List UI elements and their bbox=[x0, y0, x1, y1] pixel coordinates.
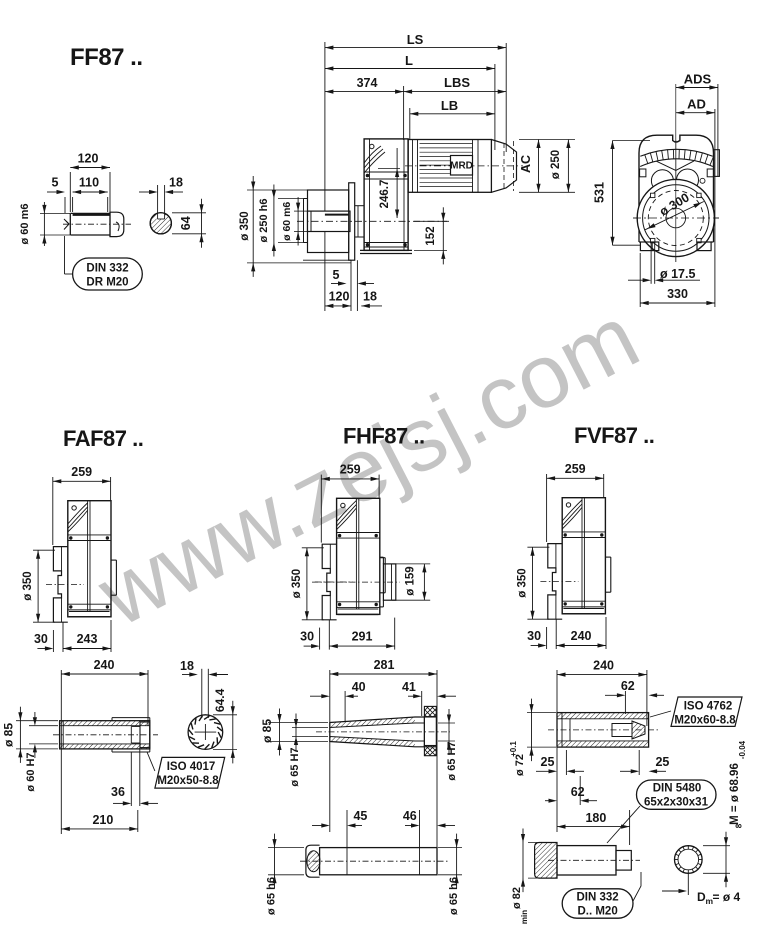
svg-text:62: 62 bbox=[621, 679, 635, 693]
svg-text:ø 350: ø 350 bbox=[239, 211, 251, 240]
svg-text:180: 180 bbox=[585, 811, 606, 825]
svg-text:64: 64 bbox=[179, 216, 193, 230]
svg-text:64.4: 64.4 bbox=[213, 688, 227, 712]
svg-text:41: 41 bbox=[402, 680, 416, 694]
svg-text:374: 374 bbox=[357, 76, 378, 90]
svg-text:240: 240 bbox=[94, 658, 115, 672]
svg-text:ø 350: ø 350 bbox=[291, 569, 303, 598]
svg-text:DIN 5480: DIN 5480 bbox=[653, 783, 702, 795]
svg-text:ø 85: ø 85 bbox=[260, 719, 274, 743]
svg-text:110: 110 bbox=[79, 176, 99, 190]
svg-text:FF87 ..: FF87 .. bbox=[70, 44, 143, 71]
svg-text:-0.04: -0.04 bbox=[738, 740, 747, 759]
svg-text:ø 82: ø 82 bbox=[511, 887, 523, 909]
svg-text:LBS: LBS bbox=[444, 75, 470, 90]
svg-text:ø 17.5: ø 17.5 bbox=[660, 267, 695, 281]
svg-text:210: 210 bbox=[92, 813, 113, 827]
svg-text:ø 65 H7: ø 65 H7 bbox=[289, 747, 301, 786]
svg-text:281: 281 bbox=[374, 658, 395, 672]
svg-text:46: 46 bbox=[403, 809, 417, 823]
svg-text:30: 30 bbox=[300, 630, 314, 644]
svg-text:DIN 332: DIN 332 bbox=[86, 263, 128, 275]
svg-text:M20x50-8.8: M20x50-8.8 bbox=[157, 775, 219, 787]
svg-text:M = ø 68.96: M = ø 68.96 bbox=[729, 763, 741, 825]
svg-text:ISO 4017: ISO 4017 bbox=[167, 761, 216, 773]
svg-text:ø 250: ø 250 bbox=[550, 150, 562, 179]
svg-text:246.7: 246.7 bbox=[379, 180, 391, 209]
svg-text:65x2x30x31: 65x2x30x31 bbox=[644, 797, 709, 809]
svg-text:40: 40 bbox=[352, 680, 366, 694]
svg-text:30: 30 bbox=[34, 632, 48, 646]
svg-text:18: 18 bbox=[169, 176, 183, 190]
svg-text:FHF87 ..: FHF87 .. bbox=[343, 424, 425, 449]
svg-text:243: 243 bbox=[77, 632, 98, 646]
svg-text:62: 62 bbox=[571, 785, 585, 799]
svg-text:25: 25 bbox=[541, 755, 555, 769]
svg-text:45: 45 bbox=[353, 809, 367, 823]
svg-text:18: 18 bbox=[363, 289, 377, 303]
svg-text:240: 240 bbox=[571, 629, 592, 643]
svg-text:259: 259 bbox=[340, 463, 361, 477]
svg-text:ø 250 h6: ø 250 h6 bbox=[258, 198, 270, 242]
svg-text:min: min bbox=[520, 910, 529, 924]
svg-text:25: 25 bbox=[655, 755, 669, 769]
svg-text:ø 350: ø 350 bbox=[22, 571, 34, 600]
svg-text:259: 259 bbox=[71, 465, 92, 479]
svg-text:5: 5 bbox=[333, 268, 340, 282]
svg-text:M20x60-8.8: M20x60-8.8 bbox=[674, 715, 736, 727]
svg-text:120: 120 bbox=[329, 289, 350, 303]
svg-text:5: 5 bbox=[52, 176, 59, 190]
svg-text:152: 152 bbox=[425, 226, 437, 245]
svg-text:+0.1: +0.1 bbox=[509, 741, 518, 757]
svg-text:120: 120 bbox=[78, 152, 99, 166]
svg-text:291: 291 bbox=[352, 630, 373, 644]
svg-text:18: 18 bbox=[180, 659, 194, 673]
svg-text:ø 60 m6: ø 60 m6 bbox=[19, 204, 31, 245]
svg-text:240: 240 bbox=[593, 659, 614, 673]
svg-text:ø 60 H7: ø 60 H7 bbox=[25, 752, 37, 791]
svg-text:ø 350: ø 350 bbox=[516, 568, 528, 597]
svg-text:259: 259 bbox=[565, 462, 586, 476]
svg-text:ø 159: ø 159 bbox=[405, 566, 417, 595]
svg-text:36: 36 bbox=[111, 785, 125, 799]
svg-text:ISO 4762: ISO 4762 bbox=[684, 701, 733, 713]
svg-text:8: 8 bbox=[735, 823, 744, 828]
svg-text:LS: LS bbox=[407, 32, 424, 47]
svg-text:FAF87 ..: FAF87 .. bbox=[63, 426, 143, 451]
svg-text:ø 65 h6: ø 65 h6 bbox=[448, 877, 460, 915]
svg-text:DR M20: DR M20 bbox=[86, 277, 128, 289]
svg-text:LB: LB bbox=[441, 98, 458, 113]
svg-text:D.. M20: D.. M20 bbox=[577, 906, 617, 918]
svg-text:ø 65 h6: ø 65 h6 bbox=[266, 877, 278, 915]
svg-text:AD: AD bbox=[687, 97, 706, 112]
svg-text:ø 85: ø 85 bbox=[2, 723, 16, 747]
svg-text:30: 30 bbox=[527, 629, 541, 643]
svg-text:L: L bbox=[405, 53, 413, 68]
svg-text:MRD: MRD bbox=[450, 161, 473, 172]
svg-text:531: 531 bbox=[593, 182, 607, 203]
svg-text:330: 330 bbox=[667, 287, 688, 301]
svg-text:ø 65 H7: ø 65 H7 bbox=[446, 741, 458, 780]
svg-text:ø 60 m6: ø 60 m6 bbox=[281, 202, 293, 241]
svg-text:FVF87 ..: FVF87 .. bbox=[574, 423, 654, 448]
svg-text:DIN 332: DIN 332 bbox=[577, 892, 619, 904]
svg-text:= ø 4: = ø 4 bbox=[713, 890, 741, 904]
svg-text:AC: AC bbox=[519, 155, 533, 173]
svg-text:ADS: ADS bbox=[684, 72, 712, 87]
